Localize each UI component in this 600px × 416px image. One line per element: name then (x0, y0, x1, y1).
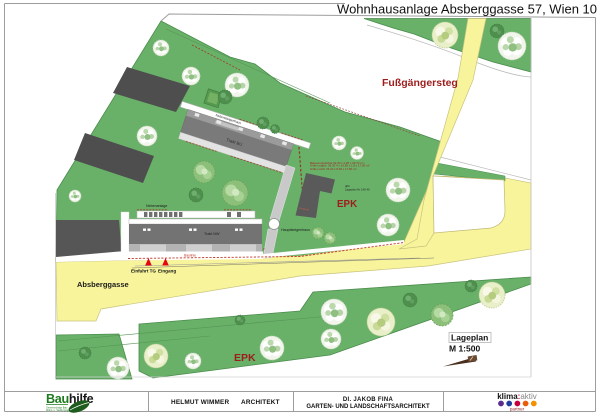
svg-text:M 1:500: M 1:500 (449, 344, 480, 354)
svg-text:Trakt NW: Trakt NW (204, 232, 220, 236)
svg-text:Absberggasse: Absberggasse (77, 280, 129, 289)
svg-text:EPK: EPK (234, 352, 256, 364)
svg-text:Einfahrt TG: Einfahrt TG (131, 269, 156, 274)
svg-text:GARTEN- UND LANDSCHAFTSARCHITE: GARTEN- UND LANDSCHAFTSARCHITEKT (306, 404, 430, 410)
svg-text:DI. JAKOB FINA: DI. JAKOB FINA (343, 397, 394, 403)
svg-text:Baulinie: Baulinie (184, 254, 196, 258)
svg-text:HELMUT WIMMER: HELMUT WIMMER (171, 399, 230, 406)
svg-text:klima:aktiv: klima:aktiv (497, 392, 537, 401)
svg-text:Lageplan Nr 140.40: Lageplan Nr 140.40 (345, 187, 370, 191)
svg-text:ARCHITEKT: ARCHITEKT (241, 399, 280, 406)
svg-text:Nebenanlage: Nebenanlage (146, 204, 167, 208)
svg-text:Hauptsteigenhaus: Hauptsteigenhaus (281, 228, 310, 232)
svg-text:Wohn- u. Siedlungsgen.: Wohn- u. Siedlungsgen. (46, 409, 72, 412)
svg-text:Wohnhausanlage Absberggasse 57: Wohnhausanlage Absberggasse 57, Wien 10 (337, 2, 597, 17)
svg-text:Eingang: Eingang (158, 269, 176, 274)
svg-text:partner: partner (510, 407, 525, 412)
svg-text:EPK: EPK (337, 199, 357, 210)
svg-text:Fußgängersteg: Fußgängersteg (382, 77, 458, 89)
svg-text:Lageplan: Lageplan (451, 333, 488, 343)
svg-text:Grille nutzfl. 15.20 x 8.30: Grille nutzfl. 15.20 x 8.30 x 17.80 m² (310, 167, 356, 171)
